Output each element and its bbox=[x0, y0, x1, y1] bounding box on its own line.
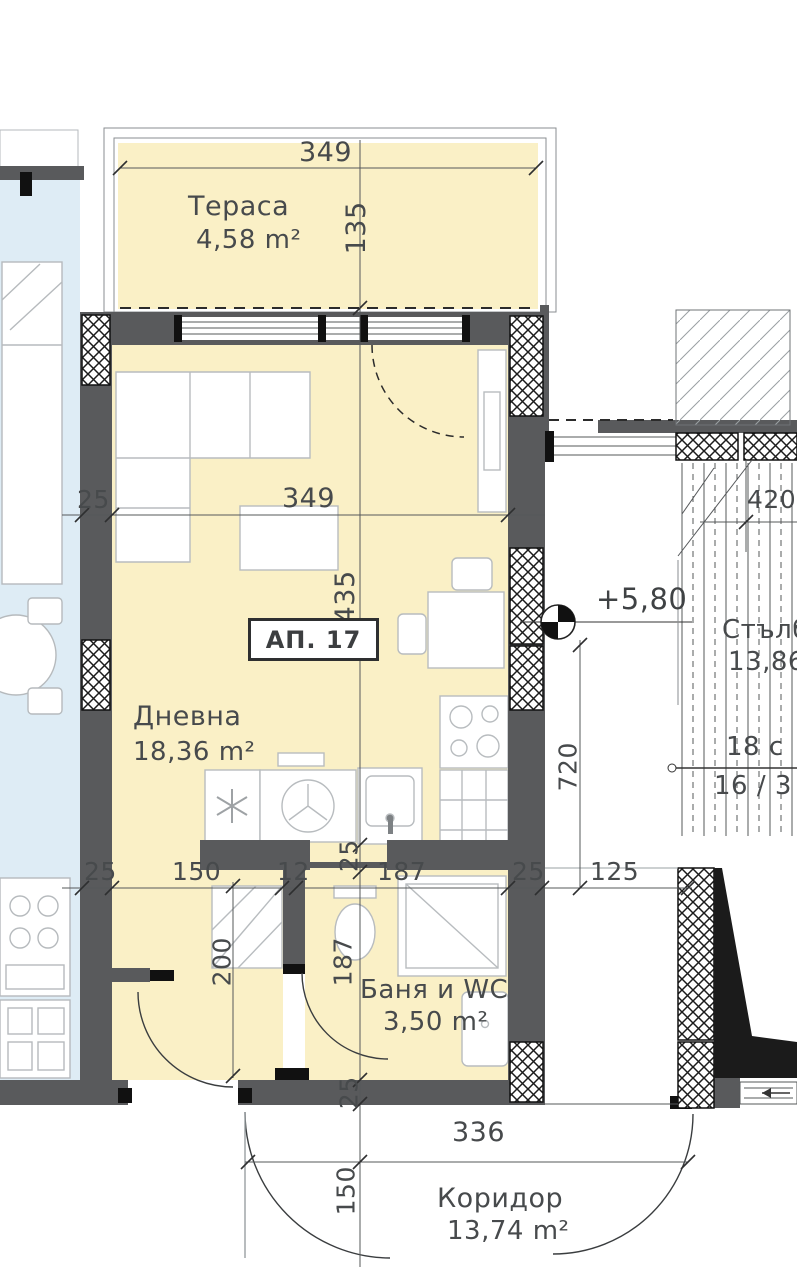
level-mark: +5,80 bbox=[596, 584, 687, 616]
corridor-name: Коридор bbox=[437, 1184, 563, 1214]
dim-kitchen-wall: 25 bbox=[335, 816, 363, 896]
dim-row-partition: 12 bbox=[277, 858, 310, 886]
dim-living-width: 349 bbox=[282, 484, 335, 514]
dim-row-wall-b: 25 bbox=[512, 858, 545, 886]
terrace-area: 4,58 m² bbox=[196, 226, 301, 255]
dim-stairs-width: 420 bbox=[747, 486, 796, 514]
stairs-area: 13,86 bbox=[728, 648, 797, 677]
dim-bottom-wall: 25 bbox=[335, 1053, 363, 1133]
stairs-name: Стълби bbox=[722, 616, 797, 645]
apartment-label: АП. 17 bbox=[248, 618, 379, 661]
dim-stairs-depth: 720 bbox=[554, 727, 582, 807]
living-area: 18,36 m² bbox=[133, 738, 255, 767]
dim-row-hall: 150 bbox=[172, 858, 221, 886]
stairs-count-upper: 18 с bbox=[726, 733, 784, 762]
floor-plan: Тераса 4,58 m² 349 135 349 435 25 АП. 17… bbox=[0, 0, 797, 1267]
dim-row-stair-gap: 125 bbox=[590, 858, 639, 886]
corridor-area: 13,74 m² bbox=[447, 1217, 569, 1246]
dim-left-wall: 25 bbox=[77, 486, 110, 514]
terrace-name: Тераса bbox=[188, 192, 289, 222]
dim-row-bath-width: 187 bbox=[377, 858, 426, 886]
dim-corridor-door: 150 bbox=[332, 1151, 360, 1231]
stairs-count-lower: 16 / 3 bbox=[714, 772, 792, 801]
bed bbox=[2, 262, 62, 584]
dim-row-wall-a: 25 bbox=[84, 858, 117, 886]
bath-area: 3,50 m² bbox=[383, 1008, 488, 1037]
living-name: Дневна bbox=[133, 702, 241, 732]
dim-terrace-depth: 135 bbox=[342, 188, 372, 268]
dim-bath-depth: 187 bbox=[329, 922, 357, 1002]
dim-hall-depth: 200 bbox=[208, 922, 236, 1002]
kitchen-adjacent bbox=[0, 878, 70, 1078]
bath-name: Баня и WC bbox=[360, 976, 508, 1005]
dim-terrace-width: 349 bbox=[299, 138, 352, 168]
floor-plan-drawing bbox=[0, 0, 797, 1267]
dim-corridor-width: 336 bbox=[452, 1118, 505, 1148]
